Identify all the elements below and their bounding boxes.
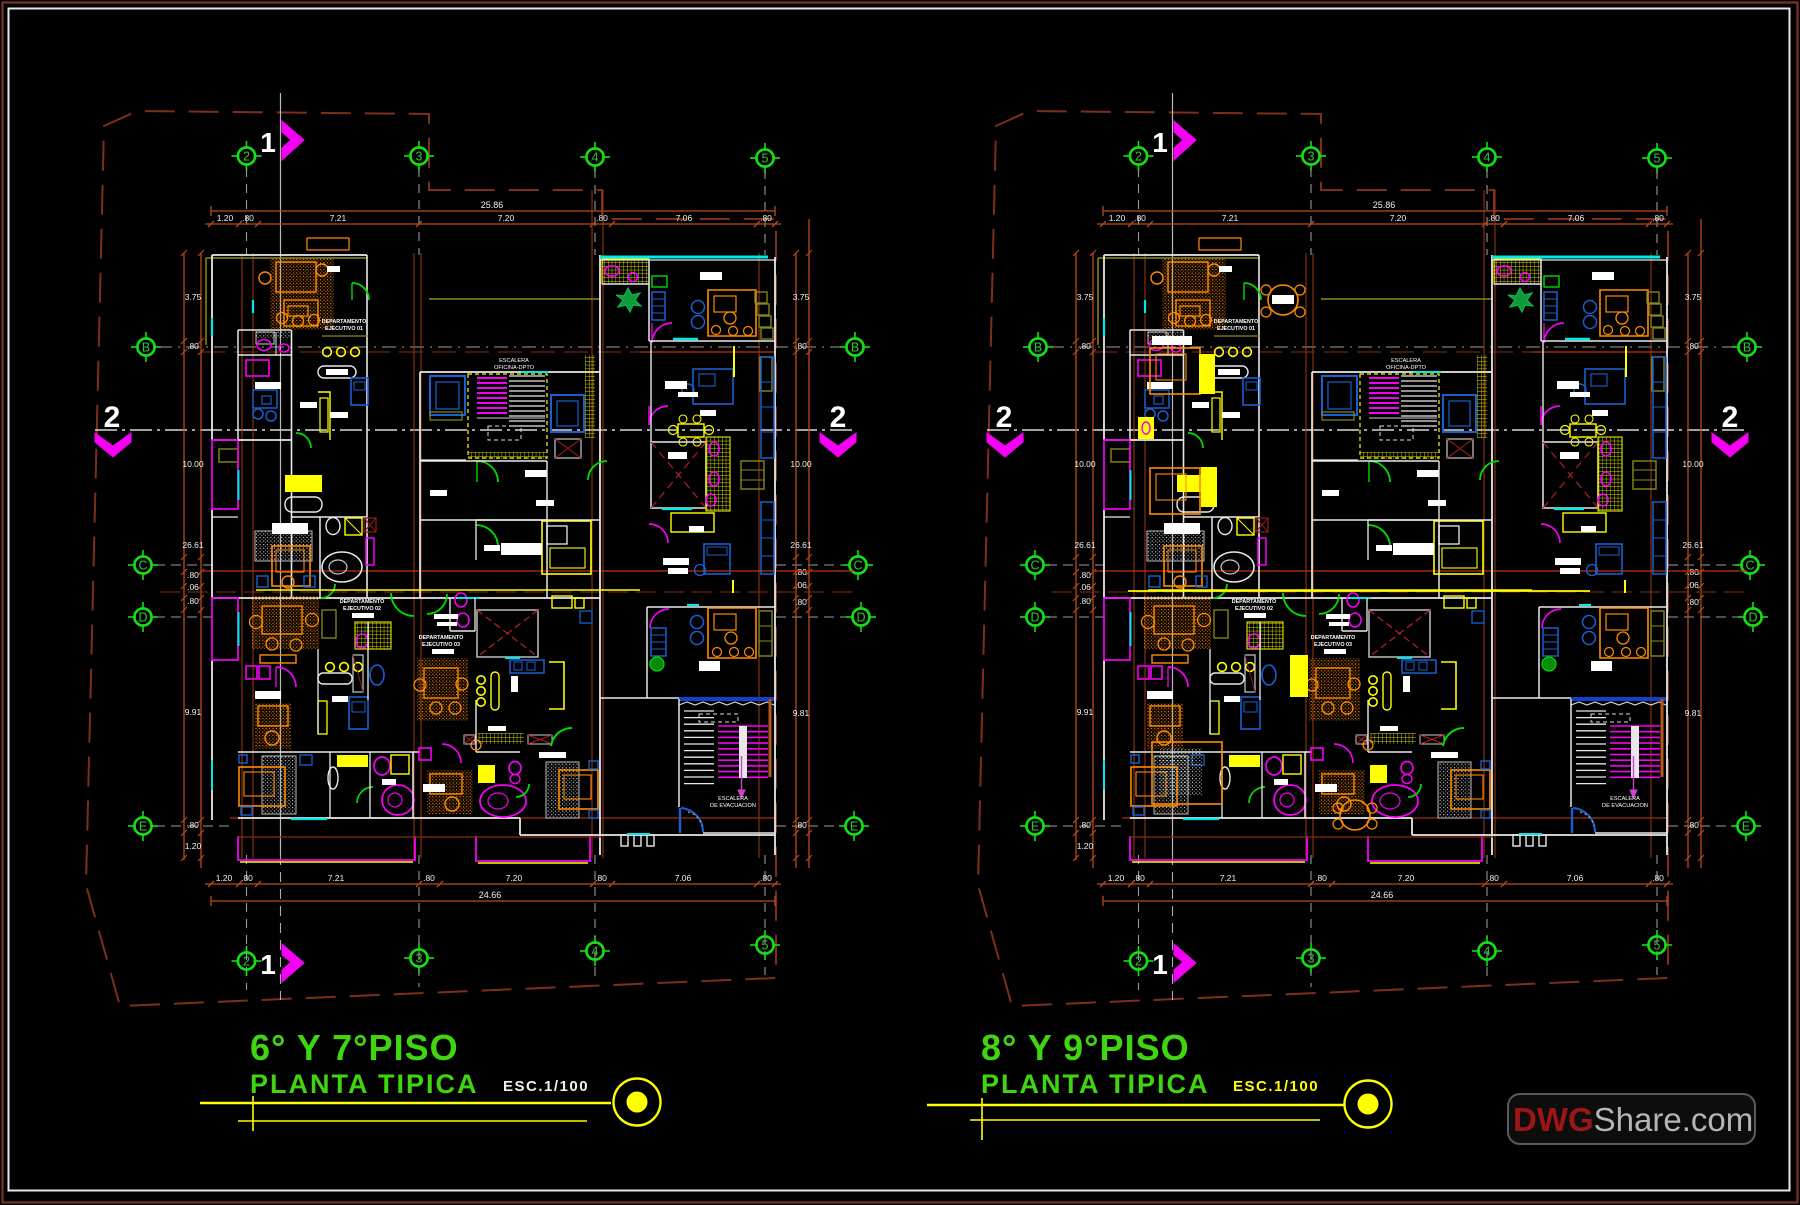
svg-text:26.61: 26.61 xyxy=(790,540,812,550)
svg-text:.80: .80 xyxy=(760,873,772,883)
svg-text:DE EVACUACION: DE EVACUACION xyxy=(710,803,756,809)
svg-text:PLANTA TIPICA: PLANTA TIPICA xyxy=(981,1069,1210,1099)
svg-text:1.20: 1.20 xyxy=(185,841,202,851)
svg-text:.80: .80 xyxy=(423,873,435,883)
svg-text:.80: .80 xyxy=(187,820,199,830)
svg-text:2: 2 xyxy=(830,401,847,434)
svg-text:10.00: 10.00 xyxy=(790,459,812,469)
svg-text:.80: .80 xyxy=(795,341,807,351)
svg-text:1: 1 xyxy=(260,949,276,980)
svg-text:10.00: 10.00 xyxy=(182,459,204,469)
svg-text:.80: .80 xyxy=(760,213,772,223)
svg-text:7.20: 7.20 xyxy=(506,873,523,883)
svg-text:.80: .80 xyxy=(187,341,199,351)
svg-text:4: 4 xyxy=(592,150,599,164)
svg-text:.80: .80 xyxy=(795,567,807,577)
svg-text:D: D xyxy=(856,610,865,624)
svg-text:3: 3 xyxy=(416,951,423,965)
svg-text:1: 1 xyxy=(260,127,276,158)
svg-text:DEPARTAMENTO: DEPARTAMENTO xyxy=(322,319,367,325)
svg-text:OFICINA-DPTO: OFICINA-DPTO xyxy=(494,365,535,371)
svg-text:PLANTA TIPICA: PLANTA TIPICA xyxy=(250,1069,479,1099)
svg-text:3.75: 3.75 xyxy=(185,292,202,302)
svg-text:4: 4 xyxy=(592,944,599,958)
svg-text:2: 2 xyxy=(243,954,250,968)
svg-text:26.61: 26.61 xyxy=(182,540,204,550)
svg-text:6° Y 7°PISO: 6° Y 7°PISO xyxy=(250,1027,459,1068)
svg-text:.80: .80 xyxy=(187,596,199,606)
svg-text:ESCALERA: ESCALERA xyxy=(499,358,529,364)
svg-text:.06: .06 xyxy=(795,580,807,590)
svg-text:ESCALERA: ESCALERA xyxy=(718,796,748,802)
svg-text:24.66: 24.66 xyxy=(479,890,502,900)
svg-text:B: B xyxy=(851,340,859,354)
svg-text:5: 5 xyxy=(762,151,769,165)
svg-text:D: D xyxy=(138,610,147,624)
svg-text:EJECUTIVO 01: EJECUTIVO 01 xyxy=(325,326,363,332)
svg-text:7.06: 7.06 xyxy=(676,213,693,223)
svg-text:7.06: 7.06 xyxy=(675,873,692,883)
svg-text:.80: .80 xyxy=(596,213,608,223)
svg-text:.80: .80 xyxy=(187,570,199,580)
svg-text:C: C xyxy=(853,558,862,572)
svg-text:DEPARTAMENTO: DEPARTAMENTO xyxy=(340,599,385,605)
svg-text:E: E xyxy=(139,819,147,833)
svg-text:EJECUTIVO 02: EJECUTIVO 02 xyxy=(343,606,381,612)
svg-text:DEPARTAMENTO: DEPARTAMENTO xyxy=(419,635,464,641)
svg-text:8° Y 9°PISO: 8° Y 9°PISO xyxy=(981,1027,1190,1068)
svg-text:1.20: 1.20 xyxy=(217,213,234,223)
svg-text:E: E xyxy=(850,819,858,833)
svg-text:B: B xyxy=(142,340,150,354)
svg-text:5: 5 xyxy=(762,938,769,952)
svg-text:.80: .80 xyxy=(795,820,807,830)
svg-text:ESC.1/100: ESC.1/100 xyxy=(503,1078,589,1095)
svg-text:.80: .80 xyxy=(795,597,807,607)
svg-text:.80: .80 xyxy=(242,213,254,223)
svg-text:9.91: 9.91 xyxy=(185,707,202,717)
svg-text:DWGShare.com: DWGShare.com xyxy=(1513,1101,1753,1138)
svg-text:9.81: 9.81 xyxy=(793,708,810,718)
svg-text:3.75: 3.75 xyxy=(793,292,810,302)
svg-text:1.20: 1.20 xyxy=(216,873,233,883)
svg-text:7.21: 7.21 xyxy=(328,873,345,883)
svg-text:7.20: 7.20 xyxy=(498,213,515,223)
svg-text:ESC.1/100: ESC.1/100 xyxy=(1233,1078,1319,1095)
svg-text:25.86: 25.86 xyxy=(481,200,504,210)
svg-text:.06: .06 xyxy=(187,582,199,592)
svg-text:C: C xyxy=(138,558,147,572)
svg-text:2: 2 xyxy=(104,401,121,434)
svg-text:.80: .80 xyxy=(241,873,253,883)
svg-text:2: 2 xyxy=(243,149,250,163)
svg-text:7.21: 7.21 xyxy=(330,213,347,223)
svg-text:EJECUTIVO 03: EJECUTIVO 03 xyxy=(422,642,460,648)
svg-text:3: 3 xyxy=(416,149,423,163)
svg-text:.80: .80 xyxy=(595,873,607,883)
